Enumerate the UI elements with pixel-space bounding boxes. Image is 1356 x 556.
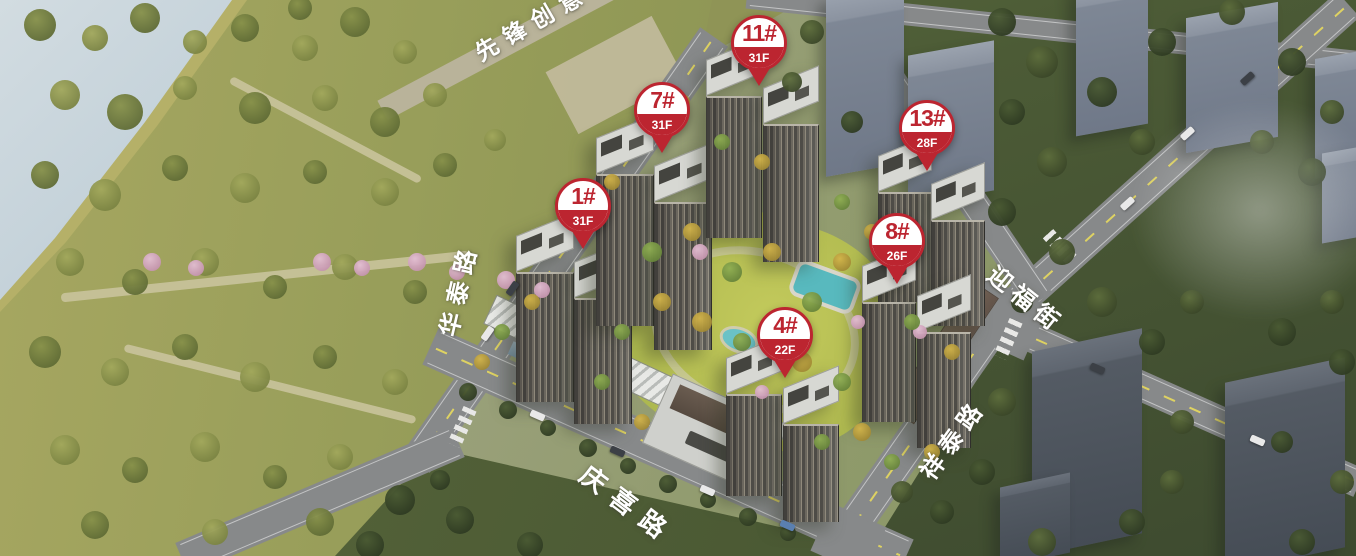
- pin-floor-count: 31F: [637, 114, 687, 135]
- tree: [202, 519, 228, 545]
- tree: [1219, 0, 1245, 25]
- tree: [1329, 349, 1355, 375]
- tree: [594, 374, 610, 390]
- tree: [739, 508, 757, 526]
- tree: [988, 198, 1016, 226]
- pin-building-number: 8#: [872, 218, 922, 245]
- tree: [303, 160, 327, 184]
- tree: [370, 107, 400, 137]
- tree: [944, 344, 960, 360]
- tree: [122, 269, 148, 295]
- tree: [494, 324, 510, 340]
- car: [529, 409, 546, 421]
- tree: [29, 336, 61, 368]
- tree: [1250, 130, 1274, 154]
- tree: [288, 0, 312, 20]
- tree: [620, 458, 636, 474]
- tree: [340, 7, 370, 37]
- tree: [579, 439, 597, 457]
- car: [1120, 196, 1136, 211]
- tree: [853, 423, 871, 441]
- tree: [173, 76, 197, 100]
- pin-balloon: 8# 26F: [869, 213, 925, 269]
- tree: [371, 178, 399, 206]
- tree: [833, 373, 851, 391]
- tree: [1026, 46, 1058, 78]
- tree: [183, 30, 207, 54]
- tree: [659, 475, 677, 493]
- tree: [517, 532, 543, 556]
- tree: [1278, 48, 1306, 76]
- pin-floor-count: 31F: [734, 47, 784, 68]
- tree: [408, 253, 426, 271]
- tree: [1289, 529, 1315, 555]
- tree: [891, 481, 913, 503]
- tree: [230, 173, 260, 203]
- tree: [356, 531, 384, 556]
- building-pin-13[interactable]: 13# 28F: [899, 100, 955, 171]
- tree: [755, 385, 769, 399]
- pin-building-number: 1#: [558, 183, 608, 210]
- tree: [188, 260, 204, 276]
- tree: [263, 465, 287, 489]
- tree: [714, 134, 730, 150]
- tree: [24, 9, 56, 41]
- pin-balloon: 7# 31F: [634, 82, 690, 138]
- car: [609, 445, 626, 457]
- pin-floor-count: 31F: [558, 210, 608, 231]
- tree: [988, 8, 1016, 36]
- tree: [692, 244, 708, 260]
- tree: [1037, 147, 1067, 177]
- tree: [382, 369, 408, 395]
- tree: [930, 500, 954, 524]
- tree: [1298, 158, 1326, 186]
- tree: [1160, 470, 1184, 494]
- tree: [1087, 287, 1117, 317]
- tree: [393, 40, 417, 64]
- tree: [834, 194, 850, 210]
- tree: [1330, 470, 1354, 494]
- pin-balloon: 11# 31F: [731, 15, 787, 71]
- tree: [884, 454, 900, 470]
- pin-building-number: 4#: [760, 312, 810, 339]
- building-pin-4[interactable]: 4# 22F: [757, 307, 813, 378]
- tree: [614, 324, 630, 340]
- tree: [82, 25, 108, 51]
- tree: [240, 362, 270, 392]
- tree: [263, 275, 287, 299]
- tree: [130, 3, 160, 33]
- tree: [50, 80, 80, 110]
- tree: [763, 243, 781, 261]
- tree: [1129, 129, 1155, 155]
- tree: [653, 293, 671, 311]
- building-pin-7[interactable]: 7# 31F: [634, 82, 690, 153]
- tree: [1119, 509, 1145, 535]
- tree: [733, 333, 751, 351]
- tree: [50, 435, 80, 465]
- tree: [433, 153, 457, 177]
- tree: [969, 459, 995, 485]
- tree: [642, 242, 662, 262]
- tree: [327, 444, 353, 470]
- tree: [904, 314, 920, 330]
- pin-building-number: 7#: [637, 87, 687, 114]
- tree: [1180, 290, 1204, 314]
- tree: [385, 485, 415, 515]
- tree: [89, 179, 121, 211]
- tree: [841, 111, 863, 133]
- tree: [634, 414, 650, 430]
- car: [1180, 126, 1196, 141]
- car: [1089, 362, 1106, 374]
- tree: [988, 388, 1016, 416]
- car: [1240, 71, 1256, 86]
- tree: [1148, 28, 1176, 56]
- tree: [459, 383, 477, 401]
- tree: [474, 354, 490, 370]
- tree: [143, 253, 161, 271]
- tree: [1028, 528, 1056, 556]
- tree: [1320, 100, 1344, 124]
- pin-balloon: 13# 28F: [899, 100, 955, 156]
- tree: [312, 85, 338, 111]
- tree: [800, 20, 824, 44]
- tree: [1271, 431, 1293, 453]
- tree: [499, 401, 517, 419]
- tree: [540, 420, 556, 436]
- tree: [101, 358, 129, 386]
- tree: [423, 83, 447, 107]
- building-pin-11[interactable]: 11# 31F: [731, 15, 787, 86]
- tree: [403, 280, 427, 304]
- car: [1249, 434, 1266, 446]
- tree: [1268, 318, 1296, 346]
- tree: [122, 457, 148, 483]
- pin-balloon: 4# 22F: [757, 307, 813, 363]
- tree: [354, 260, 370, 276]
- tree: [722, 262, 742, 282]
- pin-floor-count: 22F: [760, 339, 810, 360]
- tree: [999, 99, 1025, 125]
- tree: [313, 253, 331, 271]
- pin-building-number: 13#: [902, 105, 952, 132]
- tree: [190, 432, 220, 462]
- pin-floor-count: 28F: [902, 132, 952, 153]
- car: [480, 325, 494, 341]
- tree: [292, 35, 318, 61]
- tree: [162, 155, 188, 181]
- tree: [1170, 410, 1194, 434]
- tree: [107, 94, 143, 130]
- tree: [851, 315, 865, 329]
- tree: [231, 14, 259, 42]
- pin-floor-count: 26F: [872, 245, 922, 266]
- tree: [446, 506, 474, 534]
- tree: [524, 294, 540, 310]
- tree: [56, 248, 84, 276]
- tree: [1139, 329, 1165, 355]
- tree: [692, 312, 712, 332]
- tree: [1320, 290, 1344, 314]
- tree: [814, 434, 830, 450]
- tree: [754, 154, 770, 170]
- tree: [1049, 239, 1075, 265]
- tree: [31, 161, 59, 189]
- tree: [306, 508, 334, 536]
- tree: [239, 92, 271, 124]
- tree: [833, 253, 851, 271]
- building-pin-1[interactable]: 1# 31F: [555, 178, 611, 249]
- tree: [484, 129, 506, 151]
- tree: [81, 511, 109, 539]
- pin-balloon: 1# 31F: [555, 178, 611, 234]
- tree: [430, 470, 450, 490]
- tree: [1087, 77, 1117, 107]
- tree: [683, 223, 701, 241]
- masterplan-aerial-map: 先锋创意 华泰路 迎福街 祥泰路 庆喜路 1# 31F 4# 22F 7# 31…: [0, 0, 1356, 556]
- tree: [172, 334, 198, 360]
- tree: [313, 345, 337, 369]
- pin-building-number: 11#: [734, 20, 784, 47]
- building-pin-8[interactable]: 8# 26F: [869, 213, 925, 284]
